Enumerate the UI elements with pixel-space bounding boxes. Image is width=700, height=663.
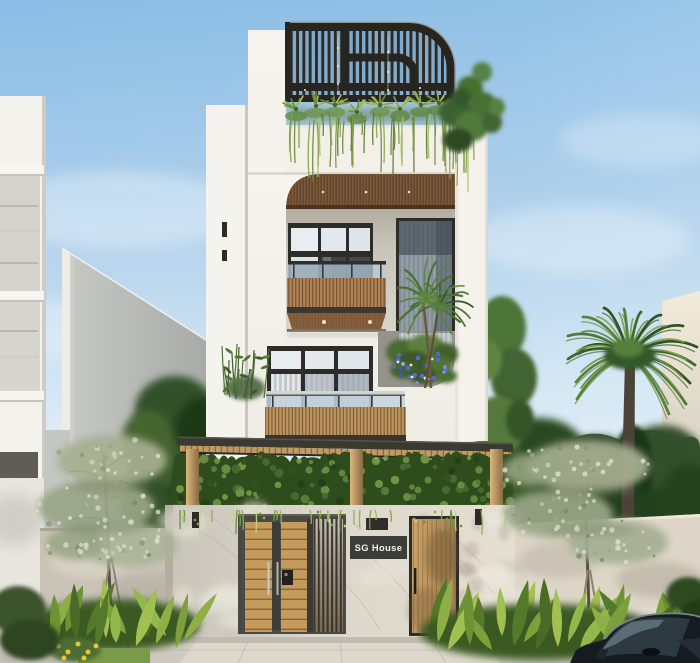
svg-text:SG House: SG House — [355, 543, 403, 553]
